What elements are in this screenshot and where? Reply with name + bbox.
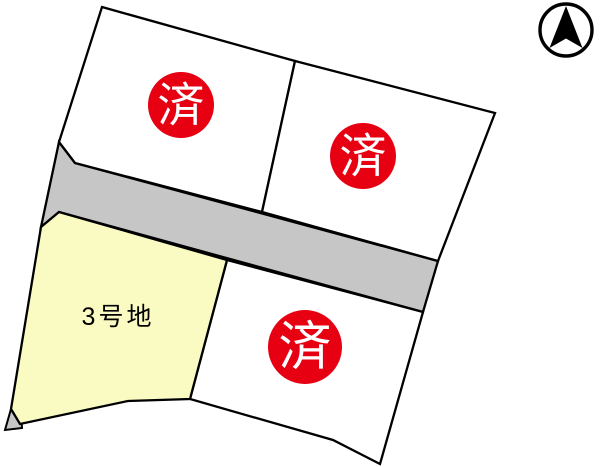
sold-badge-top-right: 済 — [330, 123, 396, 189]
sold-badge-bottom-right: 済 — [268, 310, 342, 384]
north-arrow-icon — [540, 4, 592, 56]
sold-badge-label: 済 — [279, 318, 332, 377]
lot-3-label: 3号地 — [82, 303, 155, 331]
sold-badge-label: 済 — [340, 130, 387, 183]
sold-badge-label: 済 — [158, 79, 205, 132]
site-plan-canvas: 済 済 済 3号地 — [0, 0, 600, 467]
sold-badge-top-left: 済 — [148, 72, 214, 138]
site-plan-map: 済 済 済 3号地 — [0, 0, 600, 467]
